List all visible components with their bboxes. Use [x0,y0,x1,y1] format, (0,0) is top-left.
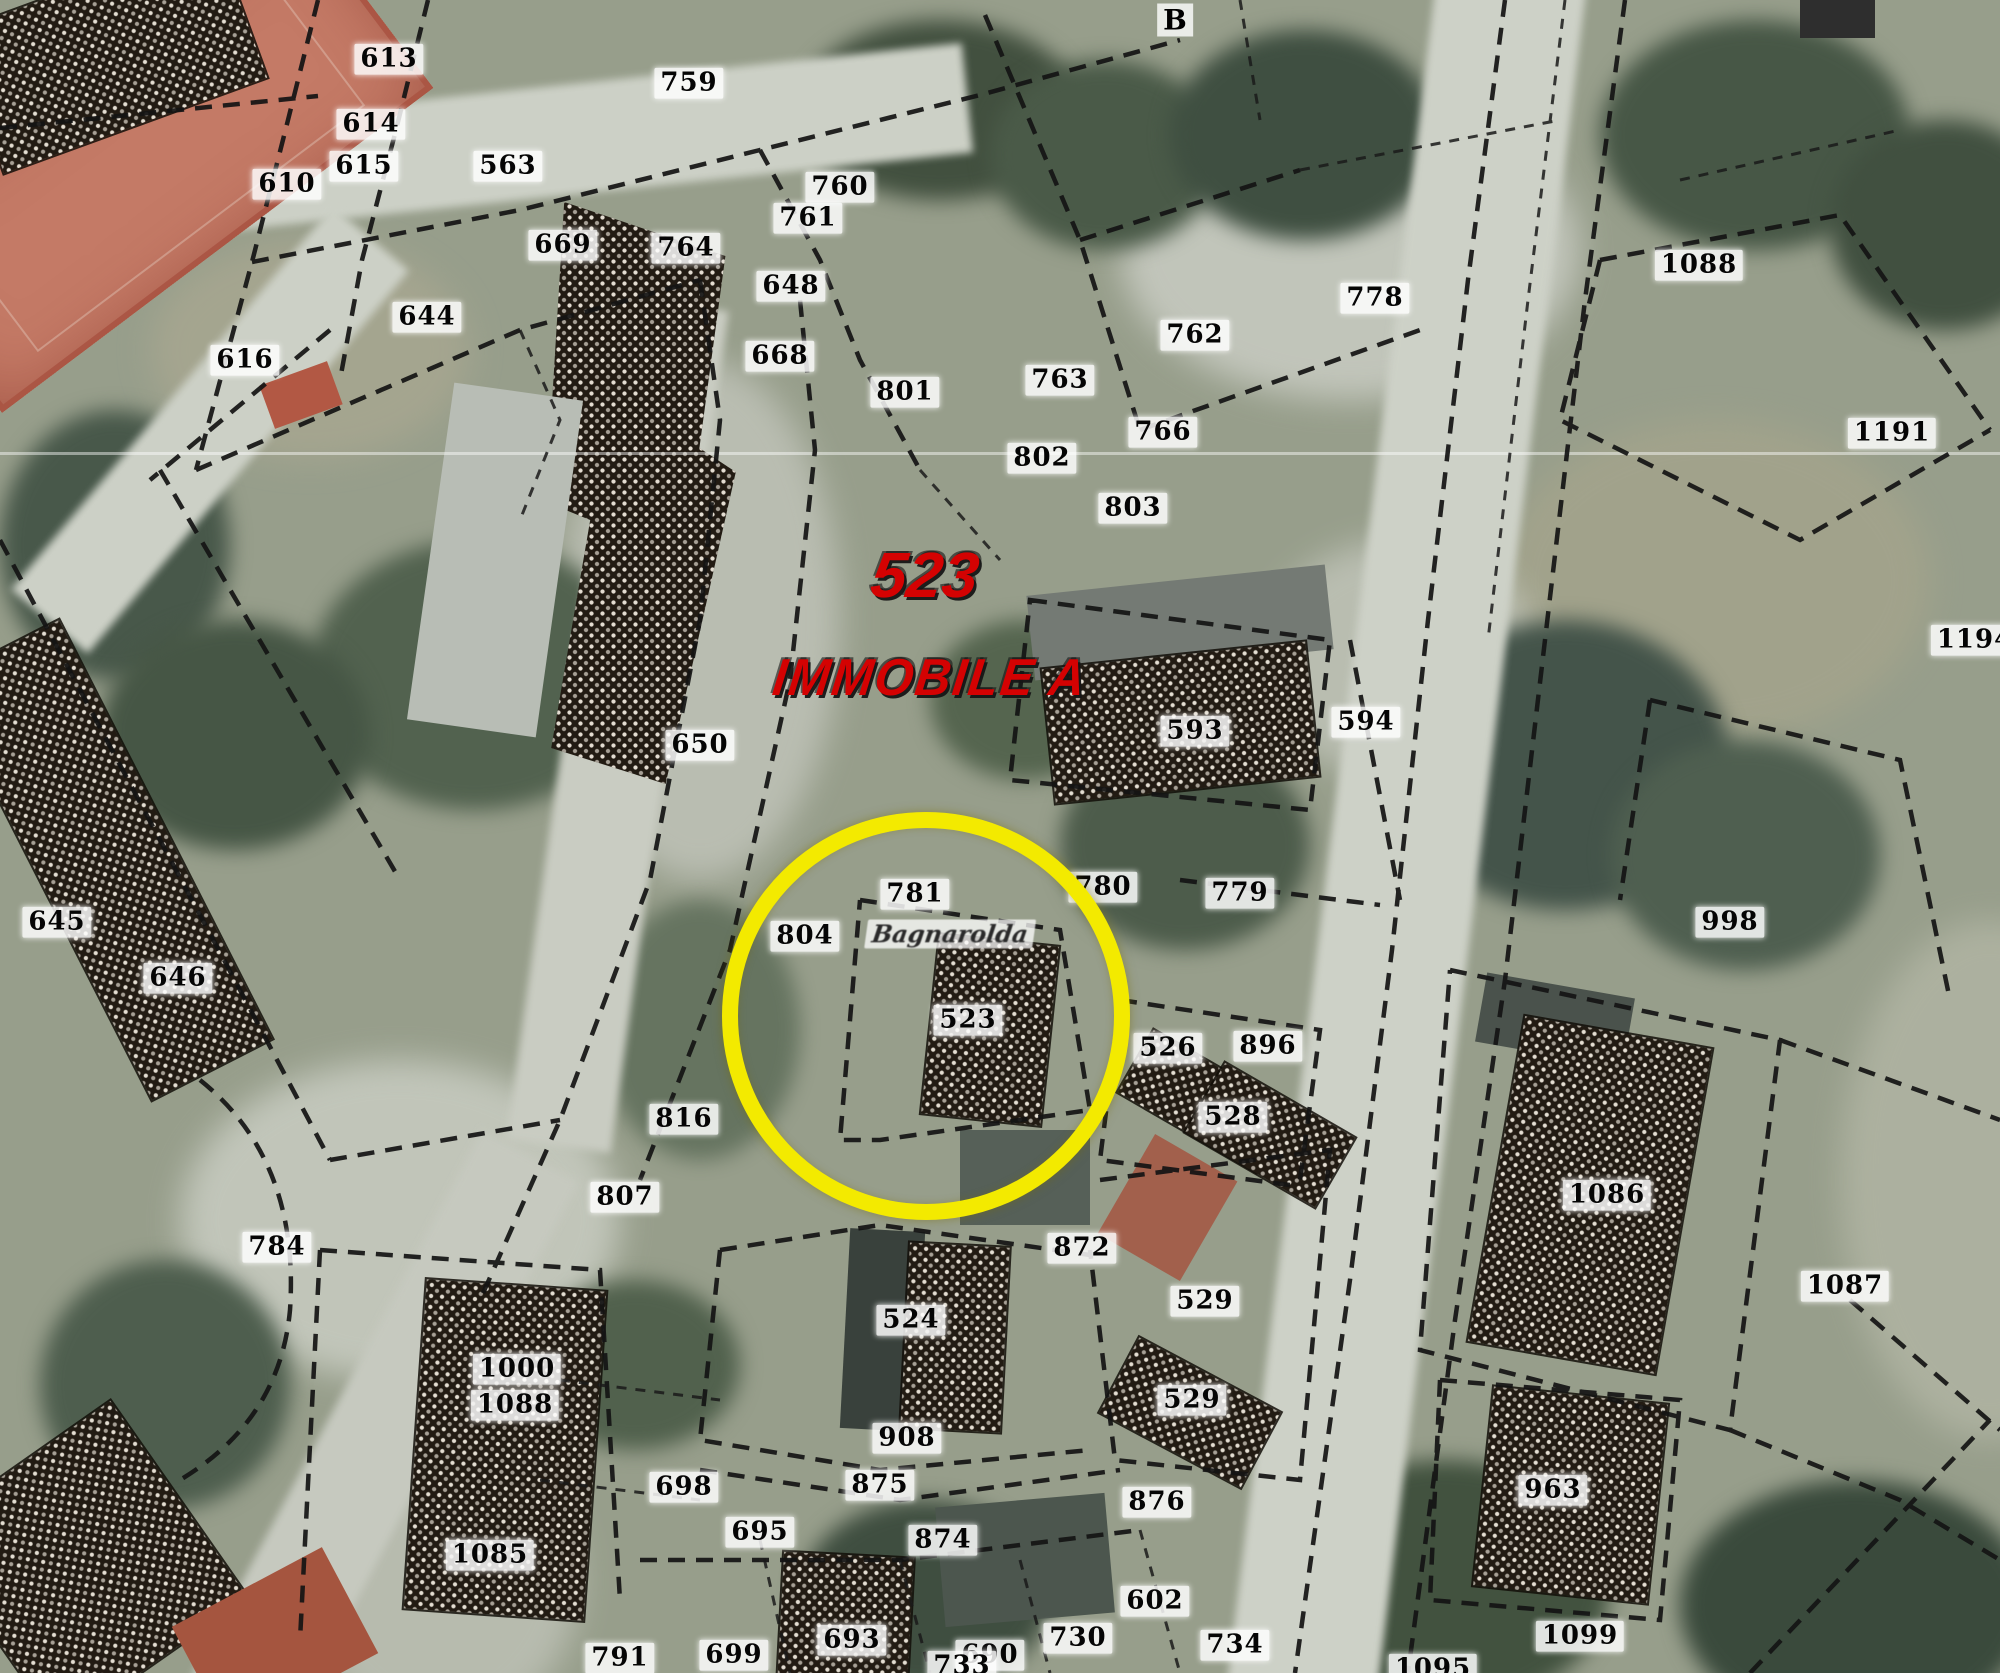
parcel-label: 526 [1133,1033,1202,1064]
parcel-label: 908 [872,1423,941,1454]
parcel-label: 874 [908,1525,977,1556]
parcel-label: 668 [745,341,814,372]
parcel-label: 645 [22,907,91,938]
parcel-label: 646 [143,963,212,994]
parcel-label: 876 [1122,1487,1191,1518]
parcel-label: 875 [845,1470,914,1501]
parcel-label: 529 [1170,1286,1239,1317]
parcel-label: 698 [649,1472,718,1503]
parcel-label: 816 [649,1104,718,1135]
parcel-label: 1191 [1848,418,1936,449]
parcel-label: 766 [1128,417,1197,448]
parcel-label: 733 [927,1651,996,1673]
parcel-label: 1087 [1801,1271,1889,1302]
parcel-label: 613 [354,44,423,75]
parcel-label: 760 [805,172,874,203]
parcel-label: 1088 [471,1390,559,1421]
parcel-label: 644 [392,302,461,333]
sheet-letter-label: B [1157,4,1193,37]
parcel-label: 1000 [473,1354,561,1385]
parcel-label: 801 [870,377,939,408]
parcel-label: 761 [773,203,842,234]
parcel-label: 803 [1098,493,1167,524]
parcel-label: 762 [1160,320,1229,351]
parcel-label: 763 [1025,365,1094,396]
parcel-label: 1086 [1563,1180,1651,1211]
parcel-label: 529 [1157,1385,1226,1416]
highlight-circle-parcel-523 [722,812,1130,1220]
parcel-label: 594 [1331,707,1400,738]
parcel-label: 784 [242,1232,311,1263]
parcel-label: 759 [654,68,723,99]
parcel-label: 807 [590,1182,659,1213]
parcel-label: 1194 [1931,625,2000,656]
parcel-label: 1085 [446,1540,534,1571]
parcel-label: 699 [699,1640,768,1671]
parcel-label: 528 [1198,1102,1267,1133]
parcel-label: 896 [1233,1031,1302,1062]
parcel-label: 779 [1205,878,1274,909]
headline-property-name: IMMOBILE A [770,648,1091,708]
parcel-label: 1099 [1536,1621,1624,1652]
parcel-label: 1088 [1655,250,1743,281]
parcel-label: 998 [1695,907,1764,938]
parcel-label: 791 [585,1643,654,1673]
parcel-label: 693 [817,1625,886,1656]
parcel-label: 593 [1160,716,1229,747]
parcel-label: 730 [1043,1623,1112,1654]
parcel-label: 615 [329,151,398,182]
parcel-label: 1095 [1389,1654,1477,1673]
parcel-label: 764 [651,233,720,264]
parcel-label: 963 [1518,1475,1587,1506]
parcel-label: 669 [528,230,597,261]
parcel-label: 802 [1007,443,1076,474]
parcel-label: 650 [665,730,734,761]
headline-parcel-number: 523 [867,538,983,612]
parcel-label: 778 [1340,283,1409,314]
parcel-label: 734 [1200,1630,1269,1661]
parcel-label: 616 [210,345,279,376]
cadastral-map: 6136146156105637597607616697646486686446… [0,0,2000,1673]
parcel-label: 602 [1120,1586,1189,1617]
parcel-label: 648 [756,271,825,302]
parcel-label: 524 [876,1305,945,1336]
parcel-label: 695 [725,1517,794,1548]
parcel-label: 610 [252,169,321,200]
parcel-label: 872 [1047,1233,1116,1264]
parcel-label: 563 [473,151,542,182]
parcel-label: 614 [336,109,405,140]
